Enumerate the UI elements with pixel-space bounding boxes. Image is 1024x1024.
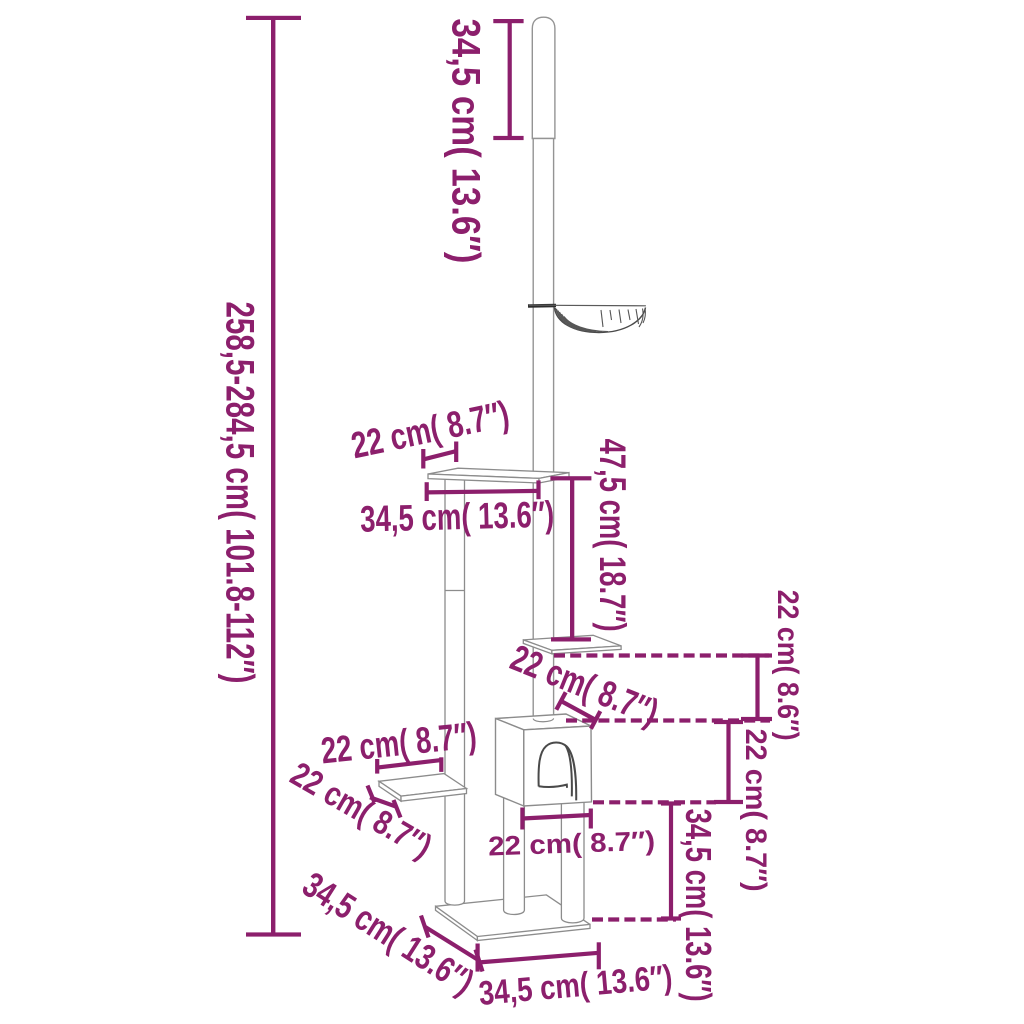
svg-text:22 cm( 8.7″): 22 cm( 8.7″) <box>488 826 656 862</box>
svg-text:22 cm( 8.7″): 22 cm( 8.7″) <box>739 729 772 892</box>
svg-text:258,5-284,5 cm( 101.8-112″): 258,5-284,5 cm( 101.8-112″) <box>218 302 262 684</box>
svg-text:34,5 cm( 13.6″): 34,5 cm( 13.6″) <box>443 19 487 264</box>
svg-text:34,5 cm( 13.6″): 34,5 cm( 13.6″) <box>678 809 719 1002</box>
svg-text:22 cm( 8.6″): 22 cm( 8.6″) <box>771 590 804 741</box>
svg-text:34,5 cm( 13.6″): 34,5 cm( 13.6″) <box>360 494 555 540</box>
svg-text:47,5 cm( 18.7″): 47,5 cm( 18.7″) <box>592 439 633 632</box>
